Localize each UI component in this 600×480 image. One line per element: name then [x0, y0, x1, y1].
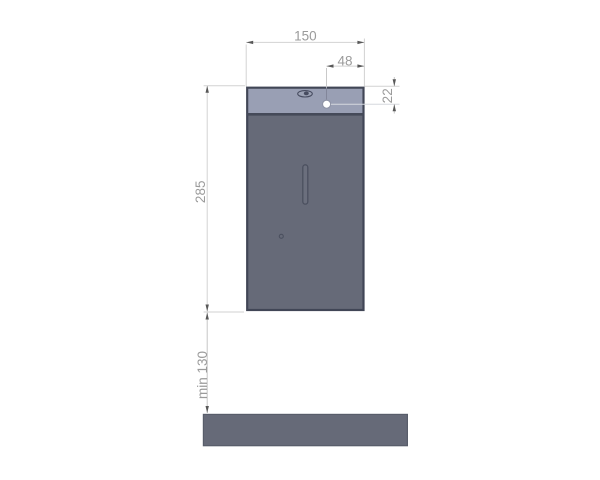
svg-text:48: 48 [337, 53, 352, 68]
svg-text:150: 150 [294, 29, 317, 44]
svg-text:min 130: min 130 [195, 351, 210, 399]
svg-text:285: 285 [193, 181, 208, 204]
svg-text:22: 22 [380, 88, 395, 103]
